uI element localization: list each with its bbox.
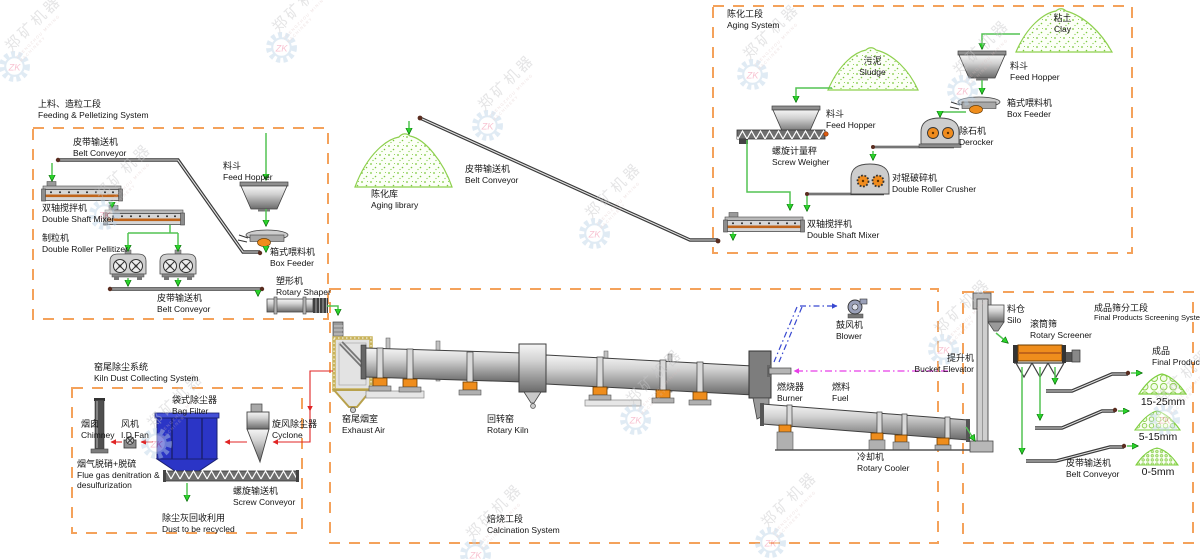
- label-flue-gas: 烟气脱硝+脱硫Flue gas denitration & desulfuriz…: [77, 459, 189, 490]
- label-feed-hopper-feeding: 料斗Feed Hopper: [223, 161, 273, 182]
- label-rotary-screener: 滚筒筛Rotary Screener: [1030, 319, 1092, 340]
- label-screw-weigher: 螺旋计量秤Screw Weigher: [772, 146, 829, 167]
- label-sludge: 污泥Sludge: [850, 56, 895, 77]
- derocker-machine: [919, 118, 961, 148]
- label-fuel: 燃料Fuel: [832, 382, 850, 403]
- label-aging-library: 陈化库Aging library: [371, 189, 418, 210]
- label-burner: 燃烧器Burner: [777, 382, 804, 403]
- label-rotary-cooler: 冷却机Rotary Cooler: [857, 452, 909, 473]
- blower-machine: [848, 299, 867, 318]
- aging-library-pile: [355, 134, 452, 187]
- label-exhaust-air: 窑尾烟室Exhaust Air: [342, 414, 385, 435]
- label-double-roller-crusher: 对辊破碎机Double Roller Crusher: [892, 173, 976, 194]
- label-final-products: 成品Final Products: [1152, 346, 1200, 367]
- double-roller-crusher-machine: [851, 164, 889, 194]
- product-pile-large: [1139, 374, 1186, 394]
- label-clay: 粘土Clay: [1040, 13, 1085, 34]
- section-title-calcination: 焙烧工段Calcination System: [487, 514, 560, 535]
- label-belt-conveyor-products: 皮带输送机Belt Conveyor: [1066, 458, 1119, 479]
- label-size-5-15mm: 5-15mm: [1133, 431, 1183, 443]
- calcination-equipment: [333, 293, 993, 452]
- label-cyclone: 旋风除尘器Cyclone: [272, 419, 317, 440]
- label-silo: 料仓Silo: [1007, 304, 1025, 325]
- rotary-shaper-machine: [267, 297, 328, 314]
- rotary-kiln-machine: [361, 338, 791, 419]
- silo-vessel: [988, 305, 1004, 331]
- label-screw-conveyor: 螺旋输送机Screw Conveyor: [233, 486, 295, 507]
- label-rotary-shaper: 塑形机Rotary Shaper: [276, 276, 331, 297]
- section-title-screening: 成品筛分工段Final Products Screening System: [1094, 303, 1200, 323]
- label-box-feeder-feeding: 箱式喂料机Box Feeder: [270, 247, 315, 268]
- product-pile-small: [1136, 448, 1178, 465]
- product-pile-medium: [1135, 411, 1180, 430]
- label-double-shaft-mixer-2: 双轴搅拌机Double Shaft Mixer: [807, 219, 879, 240]
- cyclone-machine: [247, 404, 269, 462]
- label-belt-conveyor-feeding-bottom: 皮带输送机Belt Conveyor: [157, 293, 210, 314]
- label-double-shaft-mixer-1: 双轴搅拌机Double Shaft Mixer: [42, 203, 114, 224]
- label-dust-recycled: 除尘灰回收利用Dust to be recycled: [162, 513, 235, 534]
- label-size-0-5mm: 0-5mm: [1133, 466, 1183, 478]
- section-title-aging: 陈化工段Aging System: [727, 9, 779, 30]
- label-bucket-elevator: 提升机Bucket Elevator: [914, 353, 974, 374]
- label-id-fan: 风机I.D.Fan: [121, 419, 149, 440]
- label-feed-hopper-sludge: 料斗Feed Hopper: [826, 109, 876, 130]
- label-belt-conveyor-feeding-top: 皮带输送机Belt Conveyor: [73, 137, 126, 158]
- screw-weigher-machine: [737, 130, 828, 144]
- rotary-screener-machine: [1013, 345, 1080, 377]
- section-title-feeding: 上料、造粒工段Feeding & Pelletizing System: [38, 99, 149, 120]
- label-box-feeder-clay: 箱式喂料机Box Feeder: [1007, 98, 1052, 119]
- label-chimney: 烟囱Chimney: [81, 419, 115, 440]
- rotary-cooler-machine: [760, 403, 992, 450]
- screening-equipment: [988, 305, 1080, 377]
- label-derocker: 除石机Derocker: [959, 126, 993, 147]
- process-flow-diagram: ZK郑矿机器ZHENGZHOU MINING MACHINERY ZK郑矿机器Z…: [0, 0, 1200, 559]
- label-bag-filter: 袋式除尘器Bag Filter: [172, 395, 217, 416]
- label-feed-hopper-clay: 料斗Feed Hopper: [1010, 61, 1060, 82]
- label-blower: 鼓风机Blower: [836, 320, 863, 341]
- label-size-15-25mm: 15-25mm: [1138, 396, 1188, 408]
- label-double-roller-pellitizer: 制粒机Double Roller Pellitizer: [42, 233, 128, 254]
- section-title-kiln-dust: 窑尾除尘系统Kiln Dust Collecting System: [94, 362, 198, 383]
- label-rotary-kiln: 回转窑Rotary Kiln: [487, 414, 529, 435]
- label-belt-conveyor-incline: 皮带输送机Belt Conveyor: [465, 164, 518, 185]
